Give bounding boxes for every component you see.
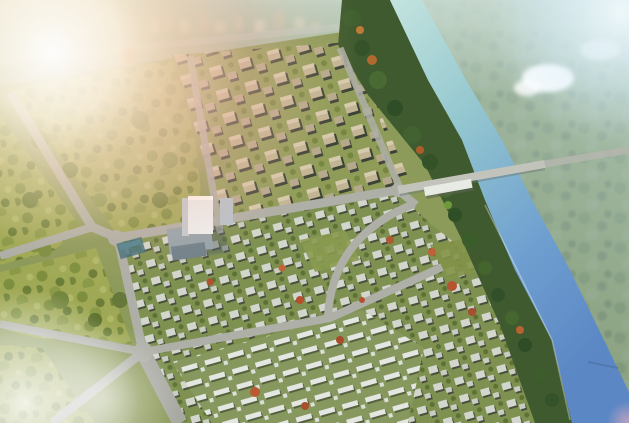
aerial-rendering — [0, 0, 629, 423]
bottom-right-smudge — [0, 0, 629, 423]
rendering-canvas — [0, 0, 629, 423]
